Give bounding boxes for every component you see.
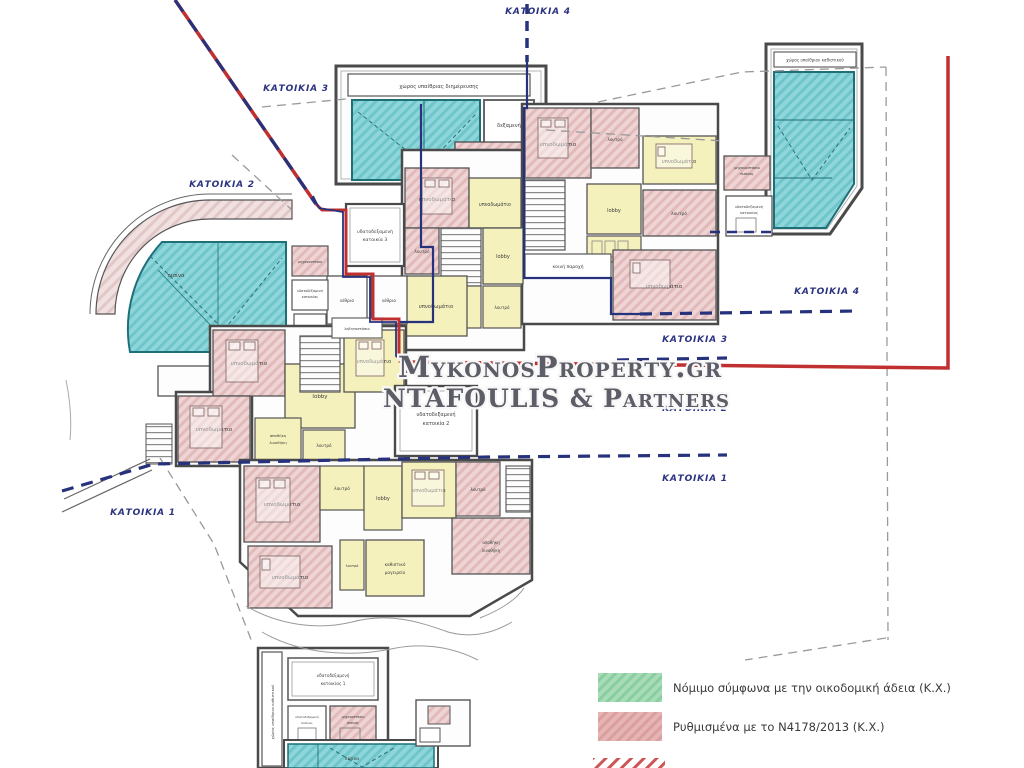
water-tank-box-k3 — [346, 204, 404, 266]
room-label: πισίνας — [347, 721, 359, 725]
room-label: υπνοδωμάτιο — [419, 303, 454, 310]
projection-right — [886, 67, 888, 640]
room-label: υδατοδεξαμενή — [735, 205, 763, 209]
room-label: κατοικία 3 — [363, 236, 388, 243]
room-label: πισίνας — [301, 721, 312, 725]
stairs-k1 — [506, 466, 530, 512]
room-label: lobby — [312, 394, 328, 400]
zone-label-katoikia1-right: ΚΑΤΟΙΚΙΑ 1 — [662, 474, 728, 484]
stairs-k2 — [300, 336, 340, 392]
room-label: λουτρό — [414, 249, 430, 254]
room-label: αποθήκη — [482, 540, 500, 545]
room-living-kitchen — [366, 540, 424, 596]
pool-annex — [288, 744, 434, 768]
zone-label-katoikia4-top: ΚΑΤΟΙΚΙΑ 4 — [505, 7, 571, 17]
room-label: πισίνας — [740, 172, 753, 176]
watermark-line1: MykonosProperty.gr — [398, 350, 722, 384]
stairs-west — [146, 424, 172, 464]
room-label: λουτρό — [470, 487, 486, 492]
projection-nw — [262, 99, 346, 107]
room-label: λουτρό — [607, 137, 623, 142]
room-label: υδατοδεξαμενή — [317, 673, 350, 678]
room-label: κατοικία 2 — [423, 420, 450, 427]
zone-label-katoikia3-right: ΚΑΤΟΙΚΙΑ 3 — [662, 335, 728, 345]
room-label: κατοικίας 1 — [321, 681, 346, 686]
projection-sw — [160, 458, 252, 642]
room-label: αίθριο — [382, 297, 396, 304]
building-kiosk-pool: χώρος υπαίθριου καθιστικού μηχανοστάσιο … — [724, 44, 862, 236]
zone-label-katoikia2-left: ΚΑΤΟΙΚΙΑ 2 — [189, 180, 255, 190]
room-label: μαγειρείο — [385, 570, 406, 575]
annex-small-room — [428, 706, 450, 724]
room-label: μηχανοστάσιο — [342, 715, 365, 719]
room-label: αποθήκη — [270, 433, 287, 438]
room-label: κοινή παροχή — [552, 263, 583, 270]
legend-swatch-partial — [593, 758, 665, 768]
room-label: υδατοδεξαμενή — [357, 228, 393, 235]
watermark: MykonosProperty.gr NTAFOULIS & Partners — [383, 350, 730, 413]
room-label: υδατοδεξαμενή — [297, 289, 323, 293]
room-label: lobby — [496, 254, 510, 260]
legend-label-legal: Νόμιμο σύμφωνα με την οικοδομική άδεια (… — [673, 681, 951, 695]
water-tank-box-k1 — [288, 658, 378, 700]
zone-label-katoikia1-left: ΚΑΤΟΙΚΙΑ 1 — [110, 508, 176, 518]
room-label: χώρος υπαίθριου καθιστικού — [786, 58, 844, 63]
legend-swatch-regulated — [598, 712, 662, 741]
room-label: αίθριο — [340, 297, 354, 304]
legend-swatch-legal — [598, 673, 662, 702]
room-label: λουτρό — [334, 485, 350, 492]
room-label: λουτρό — [494, 305, 510, 310]
building-annex: χώρος υπαίθριου καθιστικού υδατοδεξαμενή… — [258, 648, 470, 768]
zone-label-katoikia3-left: ΚΑΤΟΙΚΙΑ 3 — [263, 84, 329, 94]
pool-kiosk — [774, 72, 854, 228]
room-label: λουτρό — [316, 443, 332, 448]
room-label: lobby — [607, 208, 621, 214]
site-plan-drawing: πισίνα χώρος υπαίθριας διημέρευσης δεξαμ… — [0, 0, 1024, 768]
room-storage — [255, 418, 301, 460]
room-label: υδατοδεξαμενή — [295, 715, 319, 719]
legend-label-regulated: Ρυθμισμένα με το Ν4178/2013 (Κ.Χ.) — [673, 720, 885, 734]
room-label: λεβητοστάσιο — [344, 327, 370, 331]
room-label: λουτρό — [346, 564, 359, 568]
room-label: χώρος υπαίθριου καθιστικού — [270, 685, 275, 740]
room-label: χώρος υπαίθριας διημέρευσης — [399, 83, 478, 90]
room-label: λινοθήκη — [482, 548, 501, 553]
room-label: κατοικίας — [740, 211, 758, 215]
room-label: δεξαμενή — [497, 122, 521, 129]
terrain-curve — [66, 380, 71, 440]
watermark-line2: NTAFOULIS & Partners — [383, 384, 730, 413]
room-label: πισίνα — [167, 272, 185, 279]
room-label: κατοικίας — [302, 295, 318, 299]
room-label: lobby — [376, 496, 390, 502]
stairs-right-unit — [525, 180, 565, 250]
room-label: πισίνα — [345, 755, 359, 762]
room-label: μηχανοστάσιο — [298, 260, 322, 264]
room-storage — [452, 518, 530, 574]
legend: Νόμιμο σύμφωνα με την οικοδομική άδεια (… — [593, 673, 951, 768]
annex-small-room — [420, 728, 440, 742]
zone-label-katoikia4-right: ΚΑΤΟΙΚΙΑ 4 — [794, 287, 860, 297]
room-label: λουτρό — [671, 210, 687, 217]
room-label: υπνοδωμάτιο — [479, 201, 511, 208]
room-label: καθιστικό — [385, 562, 406, 567]
room-label: μηχανοστάσιο — [734, 166, 760, 170]
water-tank-room — [726, 196, 772, 236]
site-plan-page: πισίνα χώρος υπαίθριας διημέρευσης δεξαμ… — [0, 0, 1024, 768]
projection-se — [745, 638, 886, 660]
room-label: λινοθήκη — [269, 440, 287, 445]
